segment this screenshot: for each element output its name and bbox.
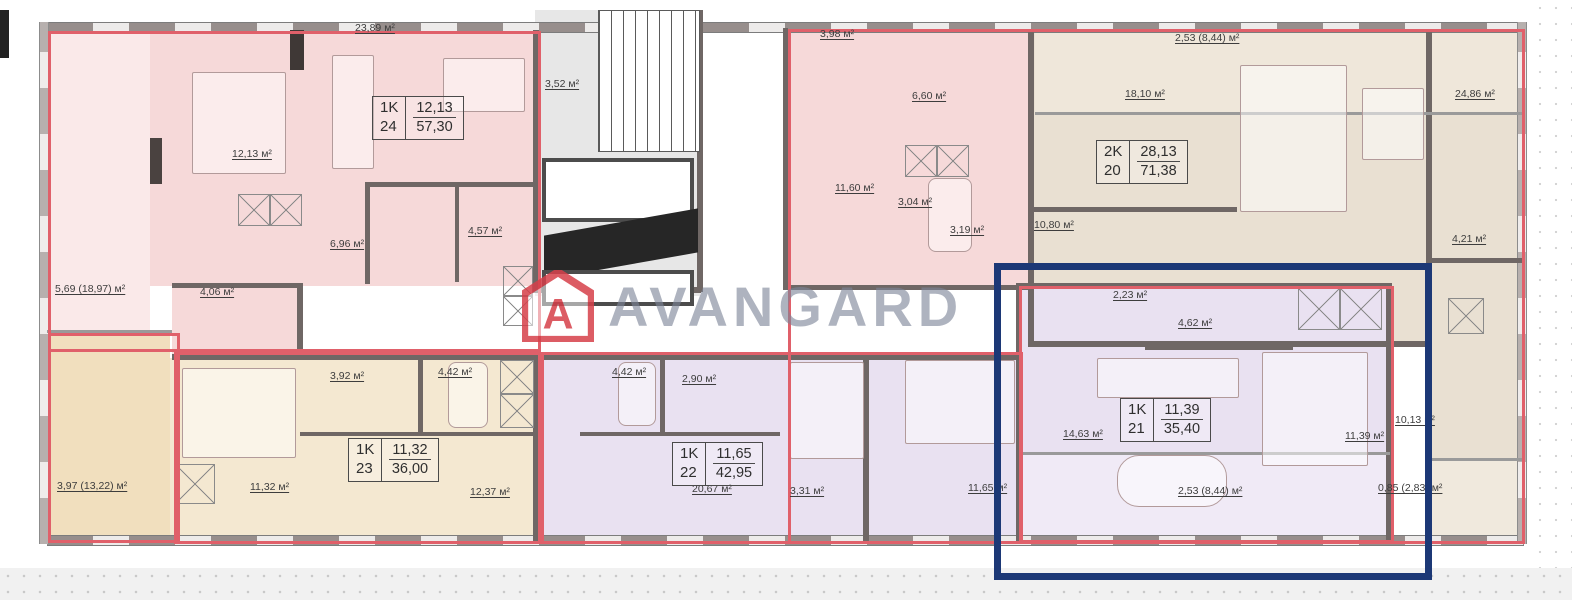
exterior-wall-left — [39, 22, 49, 544]
room-area-label: 11,32 м² — [250, 481, 289, 493]
unit-living-area: 28,13 — [1137, 143, 1179, 162]
room-area-label: 5,69 (18,97) м² — [55, 283, 125, 295]
room-area-label: 3,31 м² — [790, 485, 824, 497]
shaft-hatch — [500, 394, 534, 428]
room-area-label: 2,53 (8,44) м² — [1175, 32, 1239, 44]
furniture-table — [1362, 88, 1424, 160]
room-area-label: 12,37 м² — [470, 486, 510, 498]
unit-type: 1K — [380, 99, 398, 118]
wall-pier — [150, 138, 162, 184]
right-margin-grid — [1532, 0, 1572, 568]
room-area-label: 3,98 м² — [820, 28, 854, 40]
room-area-label: 18,10 м² — [1125, 88, 1165, 100]
unit-total-area: 71,38 — [1140, 162, 1176, 180]
apartment-20-balcony2-area[interactable] — [1432, 460, 1522, 536]
room-area-label: 23,89 м² — [355, 22, 395, 34]
unit-living-area: 11,32 — [389, 441, 430, 460]
room-area-label: 3,19 м² — [950, 224, 984, 236]
exterior-wall-right — [1517, 22, 1527, 544]
furniture-sofa — [790, 362, 864, 459]
room-area-label: 6,60 м² — [912, 90, 946, 102]
selected-unit-highlight[interactable] — [994, 263, 1432, 580]
furniture-bed — [182, 368, 296, 458]
unit-info-24[interactable]: 1K24 12,1357,30 — [372, 96, 464, 140]
wall — [783, 28, 788, 289]
elevator-shaft — [542, 270, 694, 306]
unit-total-area: 57,30 — [416, 118, 452, 136]
wall — [297, 283, 303, 360]
staircase — [598, 10, 700, 152]
unit-type: 1K — [356, 441, 374, 460]
unit-total-area: 36,00 — [392, 460, 428, 478]
room-area-label: 3,04 м² — [898, 196, 932, 208]
shaft-hatch — [503, 266, 533, 296]
shaft-hatch — [500, 360, 534, 394]
floor-plan-viewer: { "brand": {"name": "AVANGARD", "logo_le… — [0, 0, 1572, 600]
unit-type: 2K — [1104, 143, 1122, 162]
furniture-bed — [1240, 65, 1347, 212]
shaft-hatch — [238, 194, 270, 226]
wall — [418, 358, 423, 434]
room-area-label: 4,42 м² — [438, 366, 472, 378]
room-area-label: 3,97 (13,22) м² — [57, 480, 127, 492]
room-area-label: 6,96 м² — [330, 238, 364, 250]
apartment-24-hall-area[interactable] — [172, 286, 302, 356]
unit-living-area: 12,13 — [413, 99, 455, 118]
wall — [533, 30, 539, 291]
room-area-label: 24,86 м² — [1455, 88, 1495, 100]
room-area-label: 10,80 м² — [1034, 219, 1074, 231]
fixture-bathtub — [928, 178, 972, 252]
shaft-hatch — [503, 296, 533, 326]
room-area-label: 3,92 м² — [330, 370, 364, 382]
room-area-label: 4,42 м² — [612, 366, 646, 378]
unit-info-20[interactable]: 2K20 28,1371,38 — [1096, 140, 1188, 184]
room-area-label: 3,52 м² — [545, 78, 579, 90]
room-area-label: 4,21 м² — [1452, 233, 1486, 245]
unit-number: 23 — [356, 460, 374, 479]
shaft-hatch — [270, 194, 302, 226]
balcony-rail — [1432, 458, 1524, 461]
unit-number: 24 — [380, 118, 398, 137]
room-area-label: 4,57 м² — [468, 225, 502, 237]
room-area-label: 12,13 м² — [232, 148, 272, 160]
apartment-23-balcony-area[interactable] — [47, 330, 170, 537]
shaft-hatch — [937, 145, 969, 177]
shaft-hatch — [175, 464, 215, 504]
balcony-rail — [47, 330, 172, 333]
furniture-wardrobe — [332, 55, 374, 169]
wall — [660, 358, 665, 436]
room-area-label: 4,06 м² — [200, 286, 234, 298]
room-area-label: 2,90 м² — [682, 373, 716, 385]
wall — [580, 432, 780, 436]
unit-living-area: 11,65 — [713, 445, 754, 464]
shaft-hatch — [905, 145, 937, 177]
wall — [455, 185, 459, 282]
unit-type: 1K — [680, 445, 698, 464]
wall — [1032, 207, 1237, 212]
wall — [1432, 258, 1524, 263]
wall — [172, 283, 302, 288]
wall-pier — [290, 30, 304, 70]
unit-number: 22 — [680, 464, 698, 483]
corner-mark — [0, 10, 9, 58]
wall — [365, 182, 370, 284]
unit-number: 20 — [1104, 162, 1122, 181]
room-area-label: 11,60 м² — [835, 182, 874, 194]
shaft-hatch — [1448, 298, 1484, 334]
unit-info-23[interactable]: 1K23 11,3236,00 — [348, 438, 439, 482]
unit-total-area: 42,95 — [716, 464, 752, 482]
unit-info-22[interactable]: 1K22 11,6542,95 — [672, 442, 763, 486]
wall — [365, 182, 537, 187]
